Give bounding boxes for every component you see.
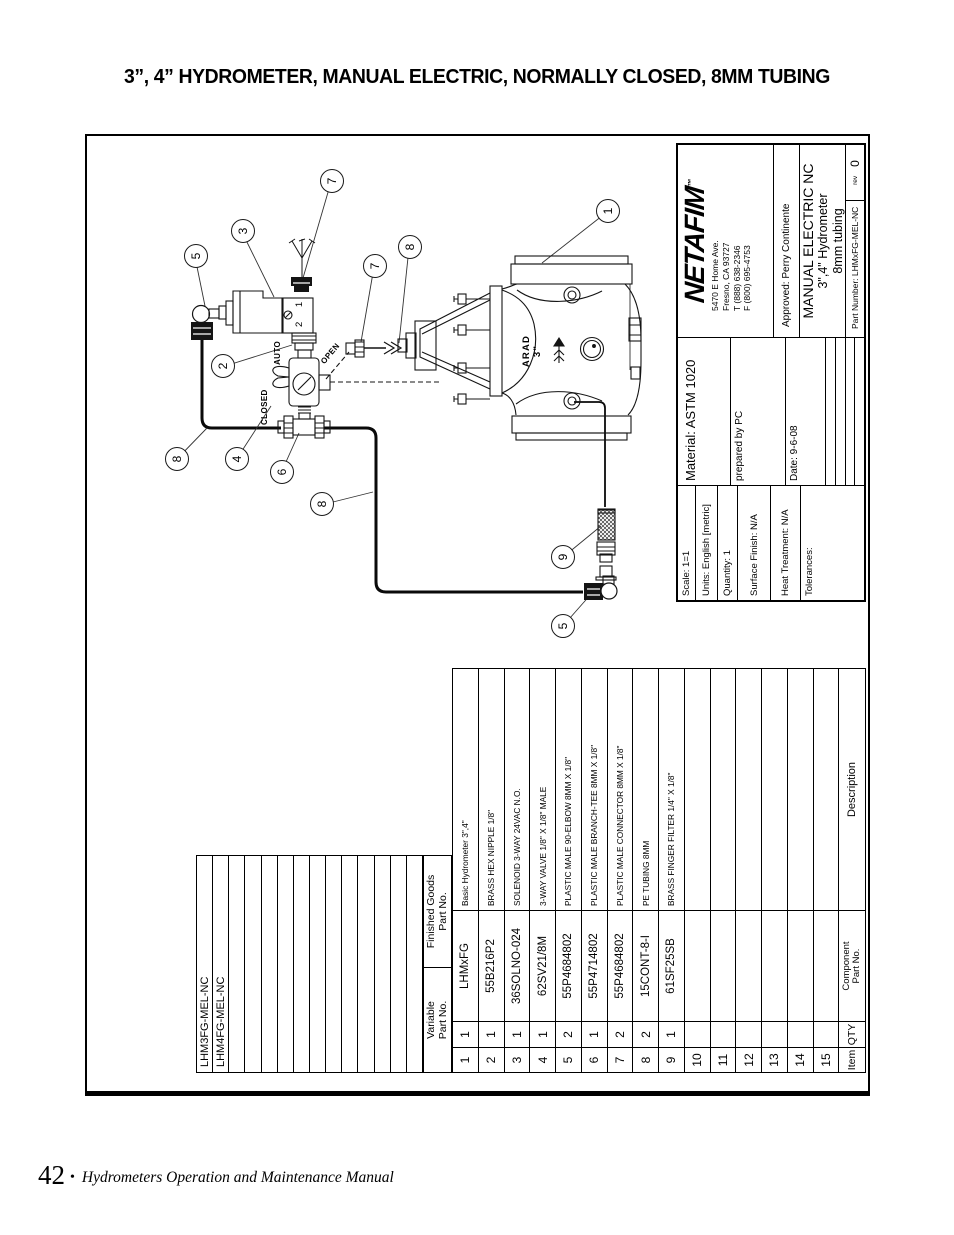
- bom-cell: [736, 669, 762, 910]
- bom-cell: [762, 669, 788, 910]
- hex-nipple: [292, 333, 316, 350]
- label-size: 3": [533, 329, 544, 373]
- bom-cell: 12: [736, 1047, 762, 1072]
- title-block-meta: Material: ASTM 1020 prepared by PC Date:…: [678, 337, 864, 485]
- label-auto: AUTO: [273, 341, 282, 365]
- bom-cell: BRASS FINGER FILTER 1/4" X 1/8": [659, 669, 685, 910]
- bom-cell: 2: [608, 1021, 634, 1047]
- balloon-callout-8b: 8: [165, 447, 189, 471]
- bom-cell: [711, 669, 737, 910]
- bom-cell: PLASTIC MALE CONNECTOR 8MM X 1/8": [608, 669, 634, 910]
- page-footer: 42•Hydrometers Operation and Maintenance…: [38, 1160, 394, 1191]
- bom-header-component: ComponentPart No.: [839, 910, 865, 1021]
- bom-cell: [762, 1021, 788, 1047]
- bom-cell: 9: [659, 1047, 685, 1072]
- bom-cell: 3-WAY VALVE 1/8" X 1/8" MALE: [530, 669, 556, 910]
- bom-cell: 36SOLNO-024: [505, 910, 531, 1021]
- dashed-control-lines: [326, 352, 442, 382]
- bom-cell: 2: [633, 1021, 659, 1047]
- bom-cell: [685, 1021, 711, 1047]
- bom-cell: SOLENOID 3-WAY 24VAC N.O.: [505, 669, 531, 910]
- trademark-symbol: ™: [687, 178, 696, 187]
- drawing-title: MANUAL ELECTRIC NC 3",4" Hydrometer 8mm …: [800, 145, 846, 337]
- bom-cell: PLASTIC MALE BRANCH-TEE 8MM X 1/8": [582, 669, 608, 910]
- solenoid-cable-connector: [289, 239, 315, 292]
- bom-cell: [814, 1021, 840, 1047]
- bom-cell: 2: [479, 1047, 505, 1072]
- label-solenoid-ports: 2 1: [294, 296, 305, 327]
- bom-cell: 1: [582, 1021, 608, 1047]
- units-field: Units: English [metric]: [696, 486, 718, 600]
- bom-cell: 55P4684802: [608, 910, 634, 1021]
- pe-tubing-path: [202, 339, 583, 592]
- material-field: Material: ASTM 1020: [678, 338, 731, 485]
- bom-cell: 11: [711, 1047, 737, 1072]
- bom-cell: [736, 910, 762, 1021]
- balloon-callout-8c: 8: [310, 492, 334, 516]
- part-number-headers: VariablePart No. Finished GoodsPart No.: [423, 855, 452, 1073]
- bom-cell: [736, 1021, 762, 1047]
- bom-cell: 6: [582, 1047, 608, 1072]
- label-body-casting: ARAD 3": [522, 329, 544, 373]
- date-field: Date: 9-6-08: [786, 338, 826, 485]
- elbow-solenoid: [191, 306, 219, 341]
- bom-cell: 4: [530, 1047, 556, 1072]
- bom-cell: PE TUBING 8MM: [633, 669, 659, 910]
- balloon-callout-5b: 5: [551, 614, 575, 638]
- manual-title: Hydrometers Operation and Maintenance Ma…: [82, 1169, 394, 1186]
- balloon-callout-3: 3: [231, 219, 255, 243]
- balloon-callout-8a: 8: [398, 235, 422, 259]
- body-port-tube: [574, 402, 605, 507]
- balloon-callout-7b: 7: [363, 254, 387, 278]
- approved-field: Approved: Perry Continente: [774, 145, 800, 337]
- bom-cell: 61SF25SB: [659, 910, 685, 1021]
- balloon-callout-7a: 7: [320, 169, 344, 193]
- bom-header-item: Item: [839, 1047, 865, 1072]
- balloon-callout-1: 1: [596, 199, 620, 223]
- bom-cell: [685, 669, 711, 910]
- prepared-by-field: prepared by PC: [731, 338, 786, 485]
- label-closed: CLOSED: [260, 389, 269, 425]
- drawing-sheet-container: 1 2 3 4 5 5 6 7 7 8 8 8 9 AUTO OPEN CLOS…: [85, 134, 870, 1096]
- balloon-leaders: [176, 182, 607, 627]
- netafim-logo: NETAFIM™: [680, 145, 709, 337]
- bom-cell: 15: [814, 1047, 840, 1072]
- bom-cell: 10: [685, 1047, 711, 1072]
- footer-separator: •: [70, 1170, 75, 1185]
- bom-cell: 1: [453, 1021, 479, 1047]
- bom-cell: [762, 910, 788, 1021]
- bom-cell: 55B216P2: [479, 910, 505, 1021]
- finished-goods-part: LHM4FG-MEL-NC: [213, 856, 229, 1072]
- balloon-callout-6: 6: [270, 460, 294, 484]
- bom-cell: 14: [788, 1047, 814, 1072]
- finished-goods-part: LHM3FG-MEL-NC: [197, 856, 213, 1072]
- bom-cell: PLASTIC MALE 90-ELBOW 8MM X 1/8": [556, 669, 582, 910]
- bom-cell: 2: [556, 1021, 582, 1047]
- bom-header-qty: QTY: [839, 1021, 865, 1047]
- company-address: 5470 E Home Ave. Fresno, CA 93727 T (888…: [710, 145, 753, 337]
- tolerances-field: Tolerances:: [801, 486, 864, 600]
- bom-cell: 3: [505, 1047, 531, 1072]
- bom-cell: [814, 910, 840, 1021]
- bom-cell: 55P4684802: [556, 910, 582, 1021]
- bom-cell: LHMxFG: [453, 910, 479, 1021]
- balloon-callout-5a: 5: [184, 244, 208, 268]
- bom-cell: [711, 910, 737, 1021]
- balloon-callout-9: 9: [551, 545, 575, 569]
- surface-finish-field: Surface Finish: N/A: [738, 486, 771, 600]
- bom-cell: 55P4714802: [582, 910, 608, 1021]
- title-block: Scale: 1=1 Units: English [metric] Quant…: [676, 143, 866, 602]
- title-block-specs: Scale: 1=1 Units: English [metric] Quant…: [678, 485, 864, 600]
- scale-field: Scale: 1=1: [678, 486, 696, 600]
- bom-cell: 13: [762, 1047, 788, 1072]
- balloon-callout-2: 2: [211, 354, 235, 378]
- bom-cell: 1: [659, 1021, 685, 1047]
- bom-cell: Basic Hydrometer 3",4": [453, 669, 479, 910]
- page-title: 3”, 4” HYDROMETER, MANUAL ELECTRIC, NORM…: [14, 66, 939, 89]
- bom-cell: BRASS HEX NIPPLE 1/8": [479, 669, 505, 910]
- bom-cell: [711, 1021, 737, 1047]
- bom-cell: 1: [453, 1047, 479, 1072]
- elbow-filter: [584, 583, 617, 600]
- bonnet-inlet-connector: [346, 340, 401, 357]
- drawing-sheet: 1 2 3 4 5 5 6 7 7 8 8 8 9 AUTO OPEN CLOS…: [85, 134, 870, 1096]
- filter-assembly: [596, 509, 616, 584]
- bom-cell: [788, 1021, 814, 1047]
- balloon-callout-4: 4: [225, 447, 249, 471]
- bom-cell: [814, 669, 840, 910]
- heat-treatment-field: Heat Treatment: N/A: [771, 486, 801, 600]
- branch-tee: [278, 407, 330, 438]
- title-block-brand: NETAFIM™ 5470 E Home Ave. Fresno, CA 937…: [678, 145, 864, 337]
- bom-cell: 8: [633, 1047, 659, 1072]
- bom-cell: 7: [608, 1047, 634, 1072]
- bom-table: 1 1 LHMxFG Basic Hydrometer 3",4" 2 1 55…: [452, 668, 866, 1073]
- bom-cell: 1: [479, 1021, 505, 1047]
- bom-cell: 62SV21/8M: [530, 910, 556, 1021]
- bom-cell: 15CONT-8-I: [633, 910, 659, 1021]
- bom-cell: [685, 910, 711, 1021]
- bom-cell: [788, 910, 814, 1021]
- revision-field: rev 0: [846, 145, 864, 200]
- bom-cell: 1: [505, 1021, 531, 1047]
- finished-goods-list: LHM3FG-MEL-NC LHM4FG-MEL-NC: [196, 855, 423, 1073]
- bom-cell: 1: [530, 1021, 556, 1047]
- variable-part-no-header: VariablePart No.: [424, 967, 451, 1072]
- quantity-field: Quantity: 1: [718, 486, 738, 600]
- bom-cell: 5: [556, 1047, 582, 1072]
- bom-cell: [788, 669, 814, 910]
- page-number: 42: [38, 1160, 65, 1190]
- part-number-field: Part Number: LHMxFG-MEL-NC: [846, 200, 864, 337]
- finished-goods-header: Finished GoodsPart No.: [424, 856, 451, 967]
- bom-header-description: Description: [839, 669, 865, 910]
